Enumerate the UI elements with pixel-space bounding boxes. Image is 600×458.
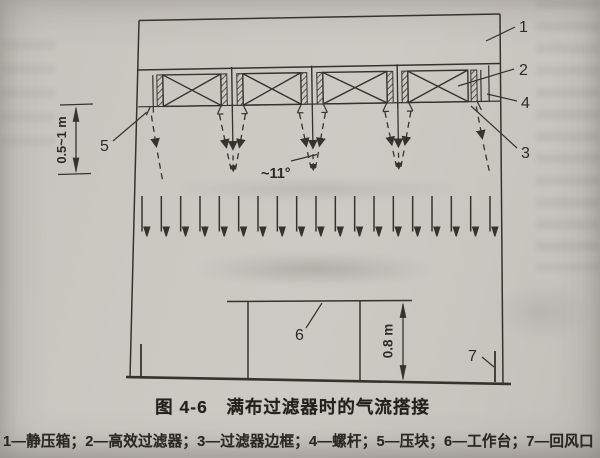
- filter-distance-label: 0.5~1 m: [54, 116, 69, 163]
- jet-center-arrow: [232, 112, 233, 149]
- screw-rod: [312, 66, 313, 111]
- worktable-top: [227, 301, 412, 302]
- clamp-block: [217, 106, 221, 115]
- callout-leaders: [113, 27, 517, 367]
- air-jets: [151, 106, 489, 179]
- dim-tick-bottom: [58, 174, 91, 175]
- jet-boundary-dashed: [228, 153, 232, 170]
- jet-angle-annotation: ~11°: [261, 155, 317, 183]
- plenum-box-outline: [126, 14, 511, 384]
- jet-edge-dashed: [483, 144, 489, 171]
- callout-5: 5: [100, 138, 109, 155]
- jet-edge-dashed: [157, 152, 162, 179]
- callout-1: 1: [519, 19, 528, 36]
- jet-boundary-dashed: [385, 112, 392, 145]
- box-right-wall: [500, 14, 503, 383]
- leader-7: [482, 357, 494, 367]
- figure-caption: 图 4-6 满布过滤器时的气流搭接: [0, 394, 585, 419]
- jet-edge-dashed: [151, 116, 156, 147]
- jet-angle-label: ~11°: [261, 166, 291, 182]
- screw-rod: [397, 64, 398, 109]
- callout-4: 4: [521, 95, 530, 112]
- screw-rod: [232, 67, 233, 112]
- jet-center-arrow: [398, 110, 399, 147]
- filter-distance-dimension: 0.5~1 m: [54, 104, 93, 175]
- leader-6: [306, 303, 322, 328]
- filter-edge-support: [489, 65, 490, 101]
- filter-bank: [138, 63, 501, 116]
- callout-6: 6: [295, 327, 304, 344]
- box-left-wall: [130, 21, 139, 379]
- leader-4: [487, 94, 517, 101]
- jet-boundary-dashed: [239, 114, 246, 147]
- jet-boundary-dashed: [400, 151, 404, 168]
- jet-boundary-dashed: [404, 112, 411, 145]
- clamp-block: [243, 105, 247, 114]
- airflow-arrow-row: [142, 196, 490, 232]
- clamp-block: [297, 104, 301, 113]
- table-height-dimension: 0.8 m: [381, 304, 404, 379]
- jet-boundary-dashed: [393, 151, 397, 168]
- table-height-label: 0.8 m: [381, 324, 396, 359]
- callout-3: 3: [521, 145, 530, 162]
- airflow-diagram: ~11° 0.5~1 m 0.8 m: [0, 0, 600, 392]
- floor-line: [126, 377, 511, 384]
- jet-boundary-dashed: [319, 113, 326, 146]
- clamp-block: [409, 103, 413, 112]
- filter-frame-hatch: [471, 70, 477, 102]
- callout-2: 2: [519, 62, 528, 79]
- dim-tick-top: [60, 104, 93, 105]
- jet-center-arrow: [312, 111, 313, 148]
- jet-boundary-dashed: [308, 152, 312, 169]
- leader-5: [113, 112, 147, 141]
- clamp-block: [323, 104, 327, 113]
- plenum-bottom-line: [138, 64, 500, 71]
- figure-legend: 1—静压箱；2—高效过滤器；3—过滤器边框；4—螺杆；5—压块；6—工作台；7—…: [3, 430, 599, 451]
- clamp-block: [383, 103, 387, 112]
- leader-3: [471, 106, 517, 148]
- book-page: ~11° 0.5~1 m 0.8 m: [0, 0, 600, 458]
- jet-boundary-dashed: [299, 113, 306, 146]
- clamp-block-right-edge: [477, 101, 481, 110]
- jet-boundary-dashed: [235, 153, 239, 170]
- callout-7: 7: [468, 348, 477, 365]
- clamp-block-left-edge: [146, 107, 150, 116]
- box-top-edge: [139, 14, 500, 21]
- jet-boundary-dashed: [219, 114, 226, 147]
